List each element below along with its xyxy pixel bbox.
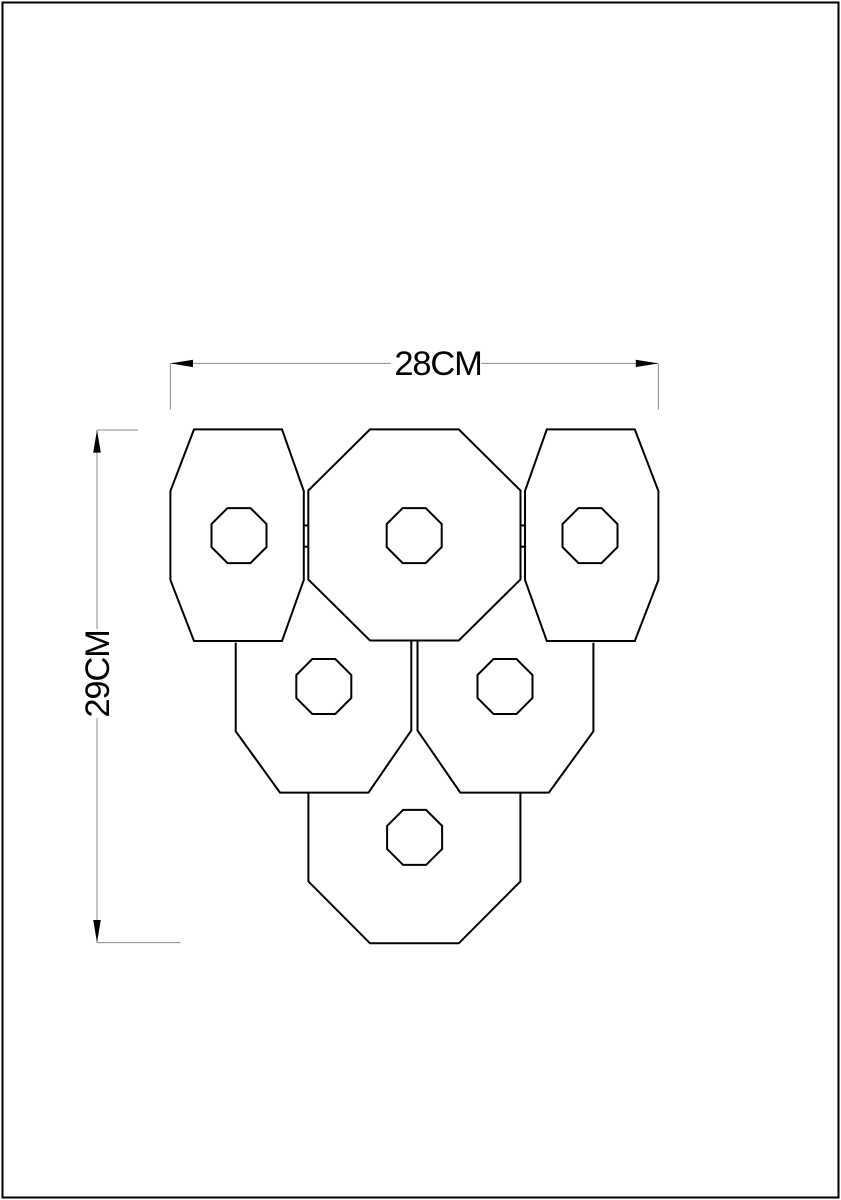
svg-text:28CM: 28CM — [394, 345, 481, 383]
svg-text:29CM: 29CM — [79, 630, 117, 717]
